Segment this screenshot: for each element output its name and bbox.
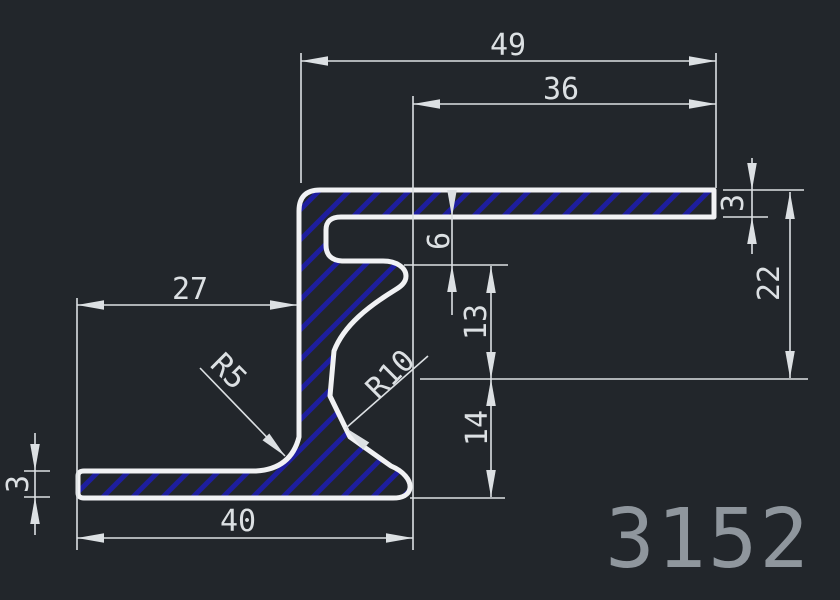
arrowhead	[747, 163, 757, 190]
arrowhead	[486, 266, 496, 293]
arrowhead	[263, 434, 289, 460]
arrowhead	[486, 352, 496, 379]
arrowhead	[689, 56, 716, 66]
dim-label-groove-depth: 6	[425, 232, 455, 250]
part-number: 3152	[605, 499, 810, 581]
dim-label-left-width: 27	[172, 275, 208, 305]
arrowhead	[30, 497, 40, 524]
dim-label-mid-upper-height: 13	[462, 304, 492, 340]
arrowhead	[386, 533, 413, 543]
arrowhead	[270, 300, 297, 310]
arrowhead	[785, 192, 795, 219]
arrowhead	[785, 351, 795, 378]
arrowhead	[486, 379, 496, 406]
arrowhead	[747, 217, 757, 244]
dim-label-left-flange-thickness: 3	[4, 475, 34, 493]
arrowhead	[77, 300, 104, 310]
dim-label-mid-lower-height: 14	[463, 410, 493, 446]
arrowhead	[447, 265, 457, 292]
cad-drawing-canvas: 49 36 27 40 22 3 6 13 14 3 R5 R10 3152	[0, 0, 840, 600]
arrowhead	[30, 444, 40, 471]
arrowhead	[301, 56, 328, 66]
arrowhead	[486, 470, 496, 497]
dim-label-bottom-width: 40	[220, 507, 256, 537]
dim-label-right-height: 22	[755, 265, 785, 301]
dim-label-top-width: 49	[490, 31, 526, 61]
dim-label-top-inner-width: 36	[543, 75, 579, 105]
dim-label-right-flange-thickness: 3	[719, 194, 749, 212]
arrowhead	[689, 99, 716, 109]
arrowhead	[77, 533, 104, 543]
arrowhead	[413, 99, 440, 109]
